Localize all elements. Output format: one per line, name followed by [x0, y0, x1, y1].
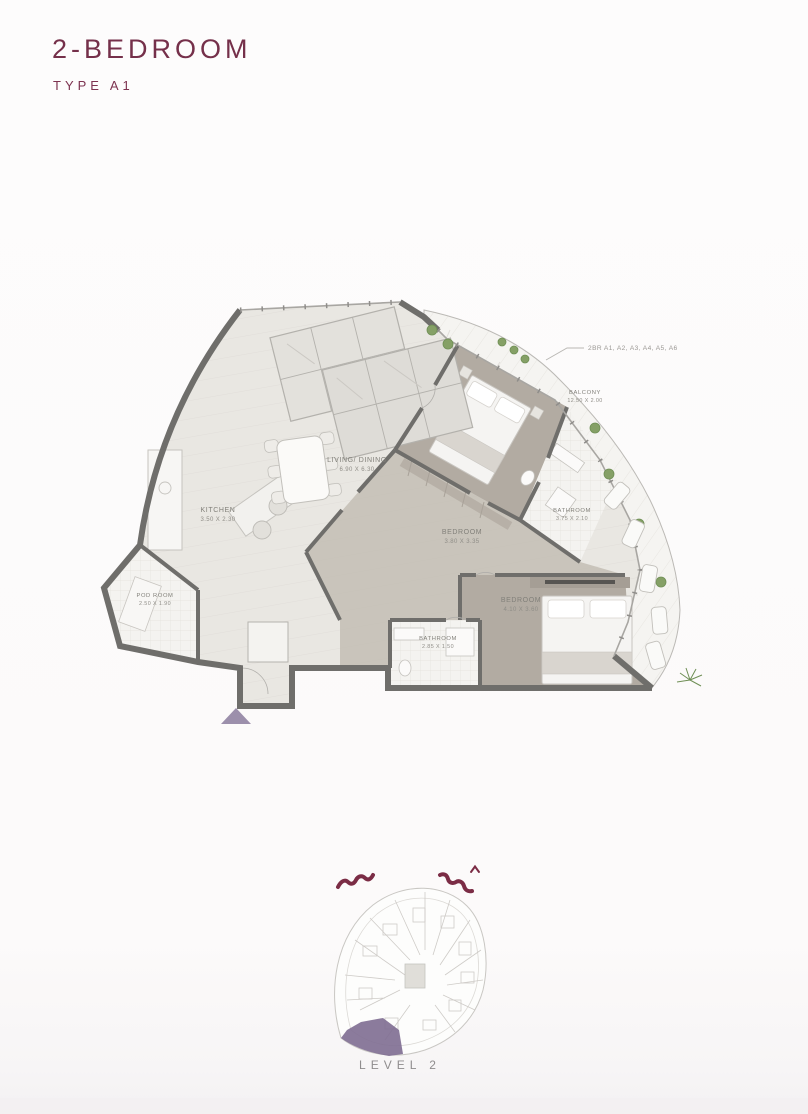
level-label: LEVEL 2 — [300, 1058, 500, 1072]
stool — [253, 521, 271, 539]
keyplan-svg — [325, 880, 505, 1065]
page-subtitle: TYPE A1 — [53, 78, 134, 93]
label-balcony: BALCONY — [569, 390, 601, 396]
floorplan-svg: 2BR A1, A2, A3, A4, A5, A6 BALCONY 12.50… — [90, 290, 730, 730]
second-bedroom — [460, 575, 652, 688]
keyplan — [325, 880, 505, 1065]
label-bedroom2: BEDROOM — [501, 597, 541, 604]
second-bathroom — [390, 620, 480, 688]
label-bathroom1: BATHROOM — [553, 508, 591, 514]
label-kitchen: KITCHEN — [201, 507, 236, 514]
dining-set — [264, 431, 343, 506]
keyplan-core — [405, 964, 425, 988]
footer-band — [0, 1098, 808, 1114]
unit-annotation: 2BR A1, A2, A3, A4, A5, A6 — [546, 345, 678, 360]
brochure-page: 2-BEDROOM TYPE A1 — [0, 0, 808, 1114]
palm-icon — [677, 668, 702, 686]
dims-bathroom1: 3.75 X 2.10 — [556, 516, 588, 522]
floorplan: 2BR A1, A2, A3, A4, A5, A6 BALCONY 12.50… — [90, 290, 730, 730]
tv-console — [545, 580, 615, 584]
dims-balcony: 12.50 X 2.00 — [567, 398, 602, 404]
north-caret-icon — [471, 867, 479, 873]
label-living: LIVING/ DINING — [327, 457, 387, 464]
dims-bathroom2: 2.85 X 1.50 — [422, 644, 454, 650]
dims-kitchen: 3.50 X 2.30 — [200, 517, 235, 523]
entry-arrow-icon — [221, 708, 251, 724]
unit-annotation-text: 2BR A1, A2, A3, A4, A5, A6 — [588, 345, 678, 352]
label-bathroom2: BATHROOM — [419, 636, 457, 642]
dims-bedroom1: 3.80 X 3.35 — [444, 539, 479, 545]
closet — [248, 622, 288, 662]
label-pod: POD ROOM — [136, 593, 173, 599]
dims-bedroom2: 4.10 X 3.60 — [503, 607, 538, 613]
label-bedroom1: BEDROOM — [442, 529, 482, 536]
page-title: 2-BEDROOM — [52, 34, 252, 65]
dims-pod: 2.50 X 1.90 — [139, 601, 171, 607]
dims-living: 6.90 X 6.30 — [339, 467, 374, 473]
